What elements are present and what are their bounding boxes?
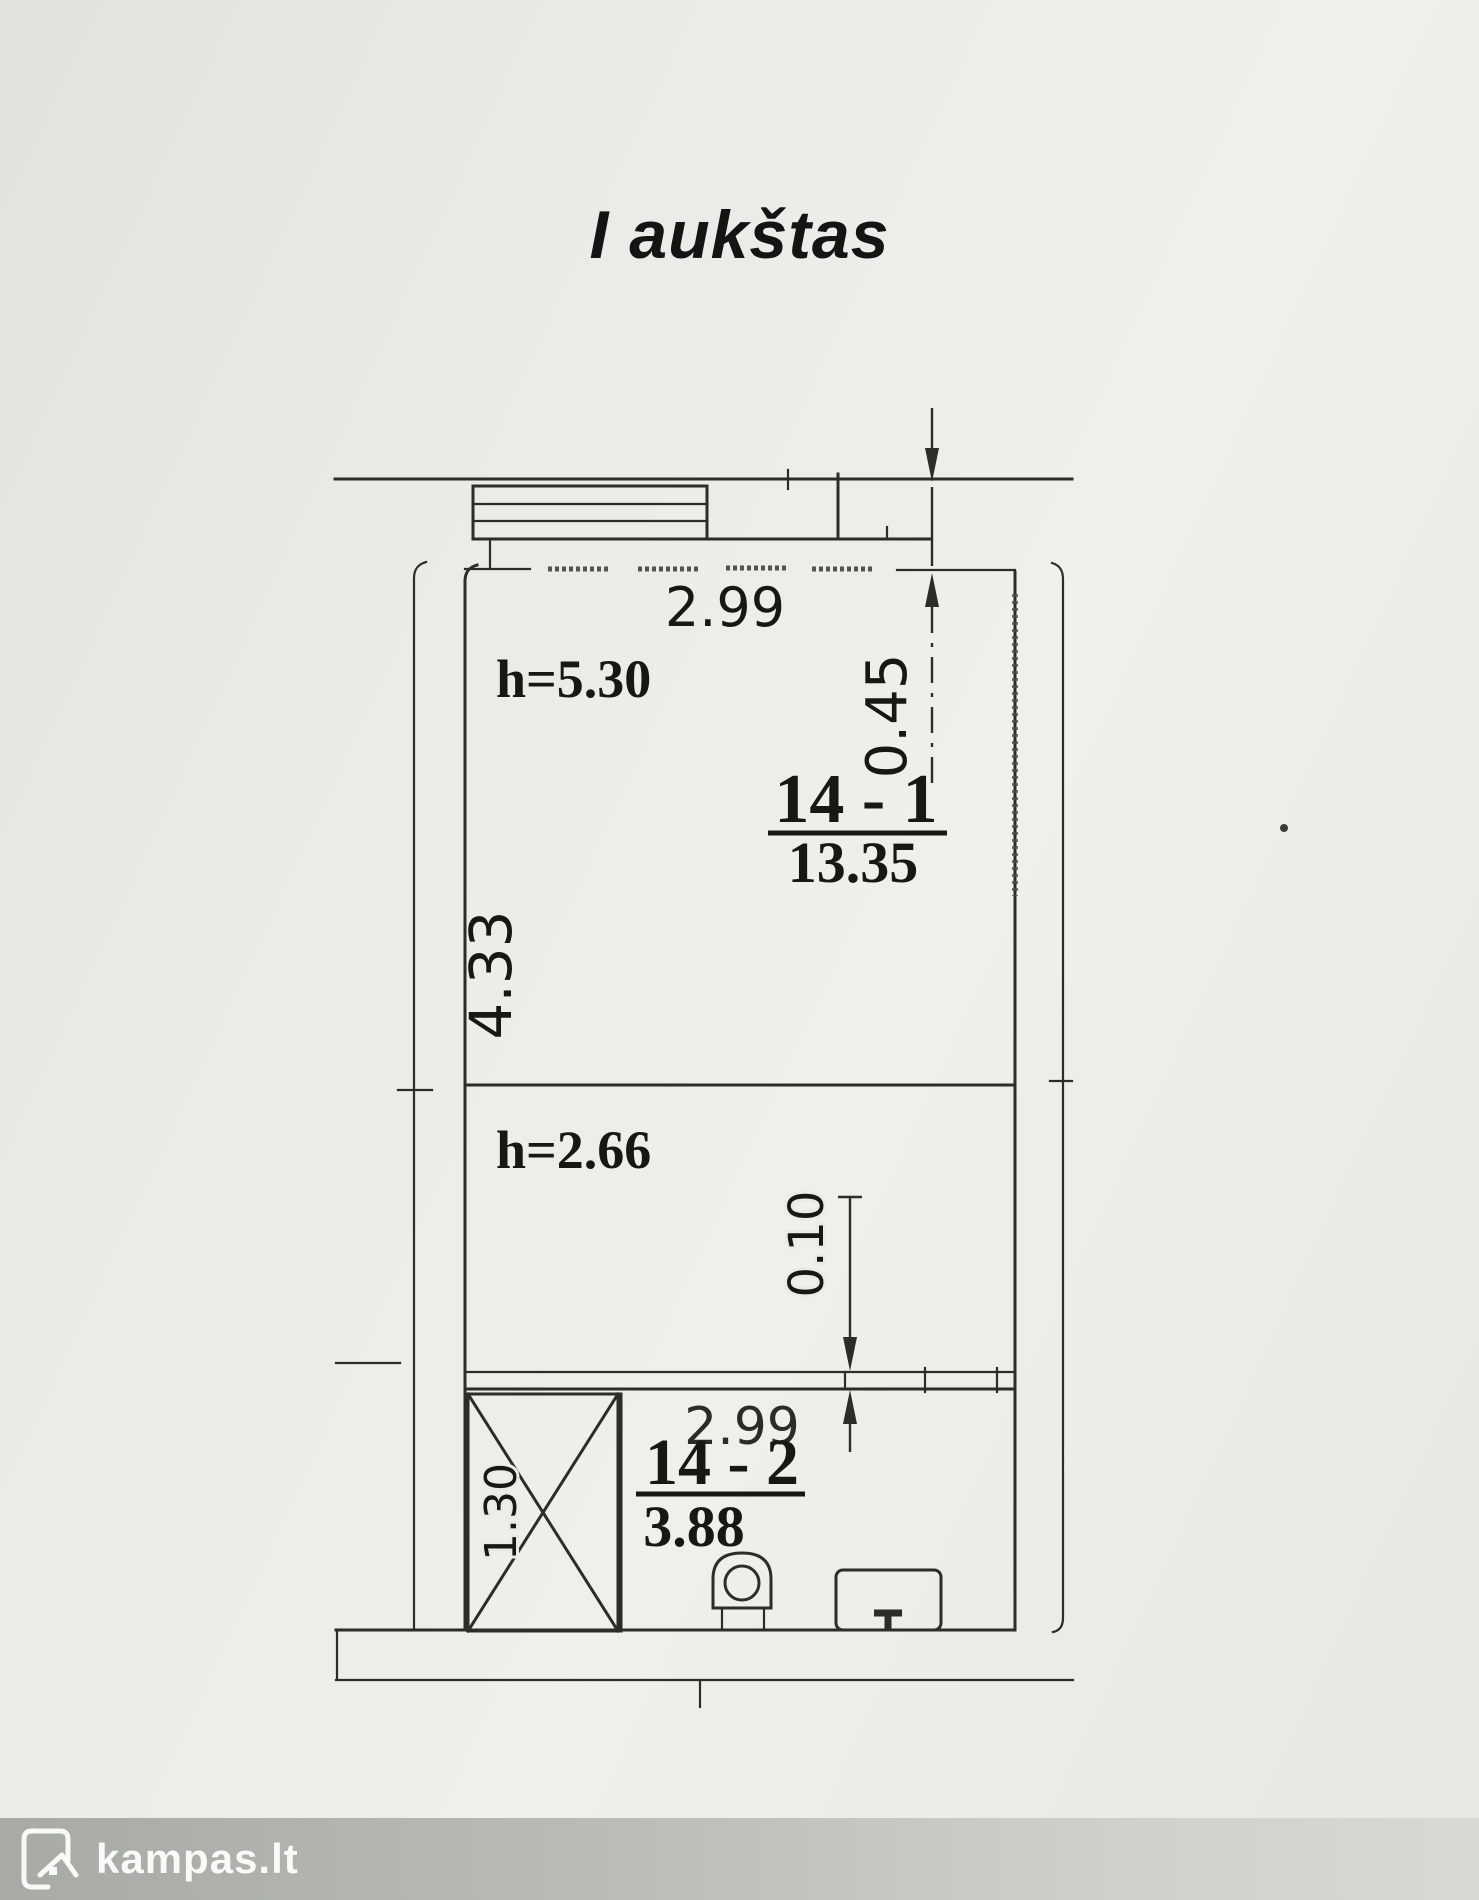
room-lower-height: h=2.66 (496, 1120, 651, 1180)
arrow-down (843, 1337, 857, 1371)
room-main-number: 14 - 1 (774, 761, 937, 838)
middle-wall: h=2.66 (398, 1081, 1072, 1180)
dim-top-offset: 0.45 (855, 654, 920, 779)
scanned-floorplan-page: I aukštas (0, 0, 1479, 1900)
arrow-up (925, 573, 939, 607)
logo-text: kampas.lt (96, 1835, 299, 1883)
room-main-area: 13.35 (788, 830, 919, 895)
stray-dot (1280, 824, 1288, 832)
dim-bath-depth: 1.30 (476, 1463, 527, 1561)
arrow-up (843, 1390, 857, 1424)
bathroom: 1.30 2.99 14 - 2 3.88 (468, 1394, 941, 1631)
dim-045-group: 0.45 (855, 408, 939, 783)
bathroom-wall (336, 1363, 1015, 1392)
dim-wall-gap: 0.10 (779, 1191, 835, 1298)
stair-hatch-box (473, 486, 707, 539)
room-bath-number: 14 - 2 (645, 1426, 799, 1499)
house-icon (18, 1827, 82, 1891)
kampas-logo: kampas.lt (0, 1827, 299, 1891)
room-main-height: h=5.30 (496, 649, 651, 709)
outer-left-line (414, 562, 426, 1630)
room-bath-area: 3.88 (643, 1494, 745, 1559)
toilet-tank (722, 1608, 764, 1630)
floorplan-drawing: 2.99 0.45 h=5.30 14 - 1 13.35 4.33 h=2.6… (0, 0, 1479, 1900)
watermark-band: kampas.lt (0, 1818, 1479, 1900)
outer-right-line (1052, 563, 1063, 1632)
toilet-drain (725, 1566, 759, 1600)
terrace-structure (335, 470, 1072, 568)
arrow-down (925, 448, 939, 482)
dim-top-width: 2.99 (665, 576, 785, 639)
bottom-boundary (336, 1630, 1073, 1707)
dim-main-depth: 4.33 (457, 910, 525, 1039)
